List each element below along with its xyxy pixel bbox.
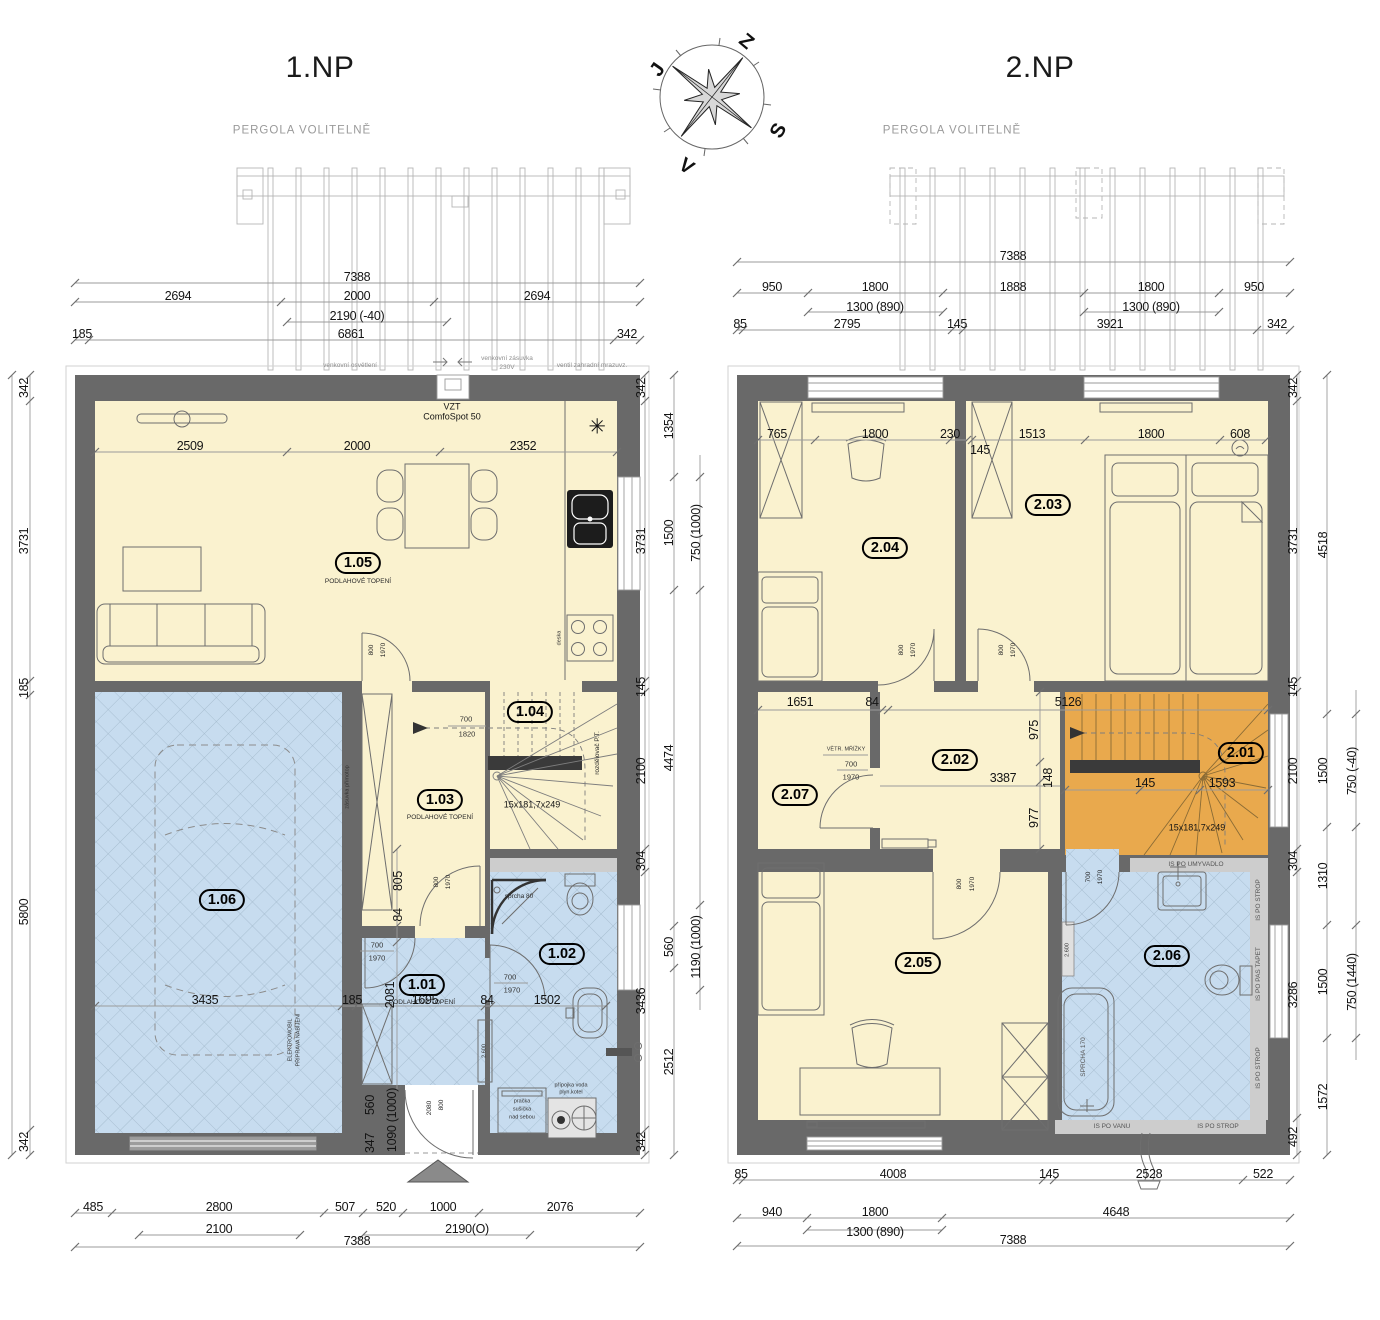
worktop-label: deska xyxy=(557,631,563,646)
fridge-icon: ✳ xyxy=(588,417,605,438)
dim-label: 940 xyxy=(762,1206,782,1219)
dim-label: 145 xyxy=(1039,1168,1059,1181)
door-dim: 1970 xyxy=(369,954,386,962)
vzt-label: ComfoSpot 50 xyxy=(423,413,481,422)
washer-label: nad sebou xyxy=(509,1115,535,1121)
door-dim: 800 xyxy=(439,1100,446,1111)
dim-label: 3731 xyxy=(1287,528,1300,555)
dim-label: 84 xyxy=(480,994,493,1007)
dim-label: 2081 xyxy=(384,982,397,1009)
dim-label: 2100 xyxy=(1287,758,1300,785)
dim-label: 560 xyxy=(663,937,676,957)
dim-label: 1300 (890) xyxy=(1122,301,1179,314)
dim-label: 1090 (1000) xyxy=(386,1088,399,1152)
dim-label: 185 xyxy=(18,678,31,698)
strip-label: IS PO STROP xyxy=(1256,879,1263,921)
dim-label: 2795 xyxy=(834,318,861,331)
dim-label: 85 xyxy=(733,318,746,331)
room-badge-207: 2.07 xyxy=(772,784,818,806)
dim-label: 1300 (890) xyxy=(846,301,903,314)
height-note: 2.600 xyxy=(482,1044,488,1058)
door-dim: 700 xyxy=(371,941,384,949)
dim-label: 560 xyxy=(364,1095,377,1115)
room-badge-102: 1.02 xyxy=(539,943,585,965)
dim-label: 1888 xyxy=(1000,281,1027,294)
dim-label: 750 (-40) xyxy=(1346,747,1359,795)
dim-label: 1513 xyxy=(1019,428,1046,441)
dim-label: 2076 xyxy=(547,1201,574,1214)
dim-label: 1651 xyxy=(787,696,814,709)
dim-label: 1593 xyxy=(1209,777,1236,790)
strip-label: IS PO PAS TAPET xyxy=(1256,947,1263,1001)
dim-label: 1572 xyxy=(1317,1084,1330,1111)
door-dim: 2080 xyxy=(427,1101,434,1115)
room-badge-202: 2.02 xyxy=(932,749,978,771)
dim-label: 3921 xyxy=(1097,318,1124,331)
strip-label: IS PO UMYVADLO xyxy=(1168,862,1223,869)
dim-label: 520 xyxy=(376,1201,396,1214)
dim-label: 4648 xyxy=(1103,1206,1130,1219)
dim-label: 950 xyxy=(762,281,782,294)
dim-label: 3731 xyxy=(635,528,648,555)
dim-label: 765 xyxy=(767,428,787,441)
door-dim: 700 xyxy=(504,973,517,981)
room-badge-106: 1.06 xyxy=(199,889,245,911)
dim-label: 2694 xyxy=(165,290,192,303)
dim-label: 342 xyxy=(18,1132,31,1152)
dim-label: 7388 xyxy=(1000,1234,1027,1247)
dim-label: 1502 xyxy=(534,994,561,1007)
dim-label: 84 xyxy=(392,908,405,921)
dim-label: 342 xyxy=(635,378,648,398)
dim-label: 1000 xyxy=(430,1201,457,1214)
floorplan-sheet: { "colors": { "wall": "#696969", "room_y… xyxy=(0,0,1380,1320)
dim-label: 2800 xyxy=(206,1201,233,1214)
dim-label: 145 xyxy=(1135,777,1155,790)
door-dim: 1970 xyxy=(446,875,453,889)
dim-label: 342 xyxy=(18,378,31,398)
dim-label: 507 xyxy=(335,1201,355,1214)
dim-label: 342 xyxy=(1287,378,1300,398)
door-dim: 1970 xyxy=(843,773,860,781)
np1-pergola-label: PERGOLA VOLITELNĚ xyxy=(233,125,371,137)
floor-heating-label: PODLAHOVÉ TOPENÍ xyxy=(407,815,473,822)
dim-label: 85 xyxy=(734,1168,747,1181)
dim-label: 2000 xyxy=(344,290,371,303)
door-dim: 1970 xyxy=(1011,643,1018,657)
dim-label: 1800 xyxy=(862,1206,889,1219)
dim-label: 492 xyxy=(1287,1127,1300,1147)
dim-label: 3435 xyxy=(192,994,219,1007)
dim-label: 304 xyxy=(635,851,648,871)
dim-label: 4474 xyxy=(663,745,676,772)
room-badge-105: 1.05 xyxy=(335,552,381,574)
door-dim: 800 xyxy=(999,645,1006,656)
washer-label: pračka xyxy=(514,1099,531,1105)
dim-label: 145 xyxy=(635,677,648,697)
dim-label: 2352 xyxy=(510,440,537,453)
dim-label: 7388 xyxy=(344,271,371,284)
dim-label: 1500 xyxy=(1317,969,1330,996)
annotation: ventil zahradní mrazuvz. xyxy=(557,363,627,370)
strip-label: IS PO STROP xyxy=(1256,1047,1263,1089)
dim-label: 6861 xyxy=(338,328,365,341)
door-dim: 800 xyxy=(957,879,964,890)
stair-dim: 1820 xyxy=(459,730,476,738)
dim-label: 2190 (-40) xyxy=(330,310,385,323)
dim-label: 1695 xyxy=(412,994,439,1007)
dim-label: 1310 xyxy=(1317,863,1330,890)
plan-drawing xyxy=(0,0,1380,1320)
ev-note: ELEKTROMOBIL xyxy=(288,1019,294,1062)
vzt-label: VZT xyxy=(444,403,461,412)
dim-label: 1500 xyxy=(1317,758,1330,785)
dim-label: 3436 xyxy=(635,988,648,1015)
door-dim: 800 xyxy=(434,877,441,888)
door-dim: 800 xyxy=(369,645,376,656)
dim-label: 1800 xyxy=(862,428,889,441)
dim-label: 3731 xyxy=(18,528,31,555)
dim-label: 950 xyxy=(1244,281,1264,294)
door-dim: 700 xyxy=(845,760,858,768)
tub-label: SPRCHA 170 xyxy=(1081,1037,1088,1076)
dim-label: 185 xyxy=(342,994,362,1007)
height-note: 2.600 xyxy=(1065,943,1071,957)
dim-label: 975 xyxy=(1028,720,1041,740)
strip-label: IS PO STROP xyxy=(1197,1124,1239,1131)
dim-label: 2509 xyxy=(177,440,204,453)
door-dim: 1970 xyxy=(911,643,918,657)
dim-label: 342 xyxy=(1267,318,1287,331)
door-dim: 1970 xyxy=(1098,870,1105,884)
dim-label: 1300 (890) xyxy=(846,1226,903,1239)
dim-label: 185 xyxy=(72,328,92,341)
socket-note: zásuvka přímotop xyxy=(345,765,351,808)
dim-label: 3286 xyxy=(1287,982,1300,1009)
door-dim: 800 xyxy=(899,645,906,656)
dim-label: 485 xyxy=(83,1201,103,1214)
dim-label: 84 xyxy=(865,696,878,709)
dim-label: 145 xyxy=(970,444,990,457)
dim-label: 977 xyxy=(1028,808,1041,828)
strip-label: IS PO VANU xyxy=(1094,1124,1131,1131)
compass-rose xyxy=(653,38,771,156)
shower-label: sprcha 80 xyxy=(505,894,534,901)
boiler-label: přípojka voda xyxy=(554,1083,587,1089)
annotation: 230V xyxy=(499,365,514,372)
dim-label: 342 xyxy=(617,328,637,341)
dim-label: 7388 xyxy=(1000,250,1027,263)
dim-label: 7388 xyxy=(344,1235,371,1248)
floor-heating-label: PODLAHOVÉ TOPENÍ xyxy=(325,579,391,586)
annotation: venkovní osvětlení xyxy=(323,363,377,370)
stair-steps-label: 15x181,7x249 xyxy=(1169,824,1226,833)
dim-label: 522 xyxy=(1253,1168,1273,1181)
door-dim: 700 xyxy=(1086,872,1093,883)
dim-label: 750 (1440) xyxy=(1346,953,1359,1010)
dim-label: 1354 xyxy=(663,413,676,440)
dim-label: 145 xyxy=(947,318,967,331)
annotation: venkovní zásuvka xyxy=(481,356,533,363)
vent-note: VĚTR. MŘÍŽKY xyxy=(827,747,866,753)
pergola-np2 xyxy=(890,168,1284,370)
room-badge-104: 1.04 xyxy=(507,701,553,723)
stair-dim: 700 xyxy=(460,715,473,723)
np1-title: 1.NP xyxy=(286,53,355,83)
boiler-label: plyn.kotel xyxy=(559,1090,582,1096)
dim-label: 4518 xyxy=(1317,532,1330,559)
dim-label: 2000 xyxy=(344,440,371,453)
dim-label: 4008 xyxy=(880,1168,907,1181)
room-badge-205: 2.05 xyxy=(895,952,941,974)
ev-note: PŘÍPRAVA NABÍJENÍ xyxy=(296,1014,302,1067)
dim-label: 1800 xyxy=(1138,428,1165,441)
stair-steps-label: 15x181,7x249 xyxy=(504,801,561,810)
dim-label: 2100 xyxy=(635,758,648,785)
dim-label: 1800 xyxy=(862,281,889,294)
dim-label: 2512 xyxy=(663,1049,676,1076)
dim-label: 1190 (1000) xyxy=(690,915,703,978)
dim-label: 2100 xyxy=(206,1223,233,1236)
dim-label: 2694 xyxy=(524,290,551,303)
room-badge-206: 2.06 xyxy=(1144,945,1190,967)
dim-label: 5800 xyxy=(18,899,31,926)
dim-label: 2528 xyxy=(1136,1168,1163,1181)
dim-label: 3387 xyxy=(990,772,1017,785)
dim-label: 805 xyxy=(392,871,405,891)
dim-label: 304 xyxy=(1287,851,1300,871)
np2-pergola-label: PERGOLA VOLITELNĚ xyxy=(883,125,1021,137)
room-badge-201: 2.01 xyxy=(1218,742,1264,764)
stair-note: rozdělovač P.T. xyxy=(595,731,602,775)
dim-label: 1800 xyxy=(1138,281,1165,294)
room-badge-103: 1.03 xyxy=(417,789,463,811)
dim-label: 1500 xyxy=(663,520,676,547)
dim-label: 342 xyxy=(635,1132,648,1152)
door-dim: 1970 xyxy=(504,986,521,994)
room-badge-203: 2.03 xyxy=(1025,494,1071,516)
dim-label: 608 xyxy=(1230,428,1250,441)
dim-label: 145 xyxy=(1287,677,1300,697)
dim-label: 5126 xyxy=(1055,696,1082,709)
dim-label: 750 (1000) xyxy=(690,504,703,561)
door-dim: 1970 xyxy=(381,643,388,657)
door-dim: 1970 xyxy=(970,877,977,891)
np1-building xyxy=(66,366,649,1182)
np2-title: 2.NP xyxy=(1006,53,1075,83)
dim-label: 148 xyxy=(1042,768,1055,788)
dim-label: 347 xyxy=(364,1133,377,1153)
washer-label: sušička xyxy=(513,1107,531,1113)
dim-label: 230 xyxy=(940,428,960,441)
room-badge-204: 2.04 xyxy=(862,537,908,559)
dim-label: 2190(O) xyxy=(445,1223,489,1236)
